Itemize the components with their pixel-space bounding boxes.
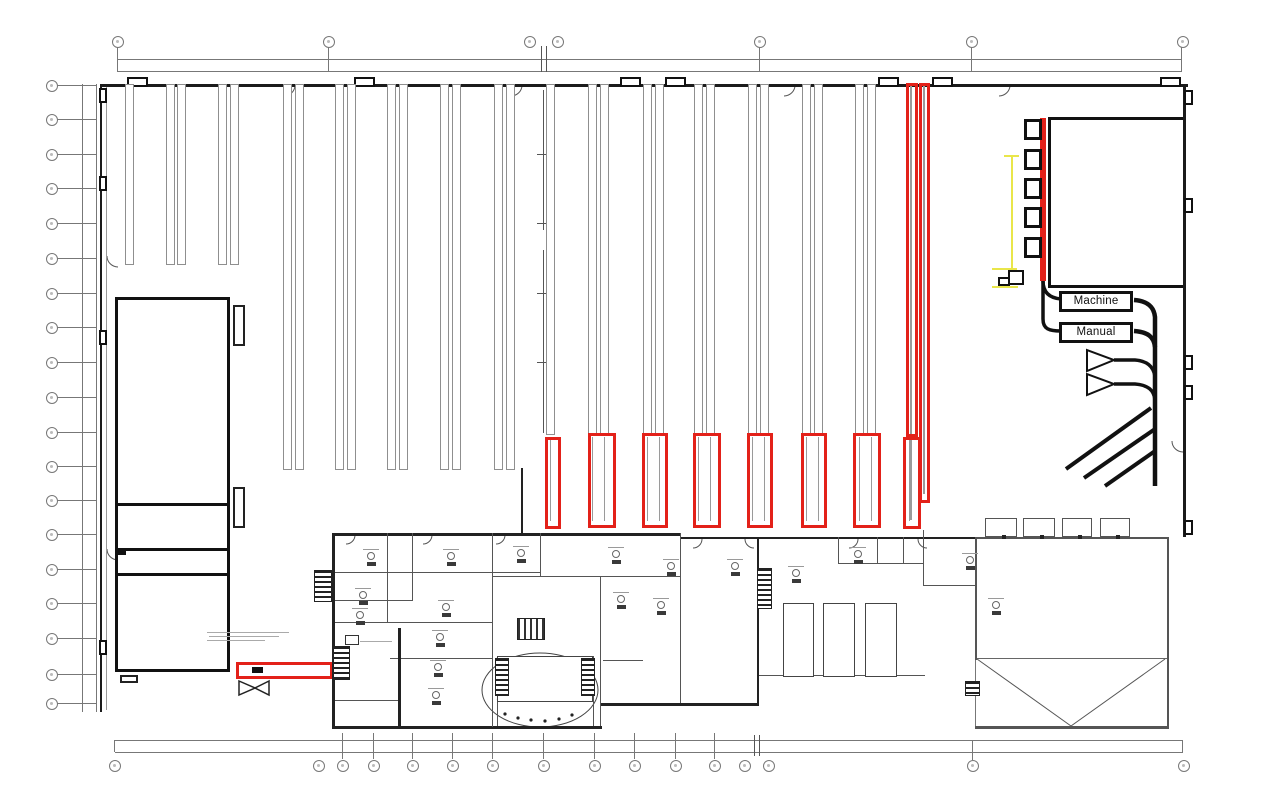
- room-tag: [432, 630, 448, 646]
- grid-marker-top: [112, 36, 124, 48]
- hall-wall-stub: [521, 468, 523, 533]
- grid-marker-top: [966, 36, 978, 48]
- plan-line: [529, 718, 532, 721]
- room-tag: [443, 549, 459, 565]
- rack-short: [125, 84, 134, 265]
- plan-line: [432, 701, 441, 705]
- plan-line: [1084, 429, 1155, 478]
- office-wall: [492, 533, 493, 727]
- tiny-note-line: [360, 641, 392, 642]
- bottom-grid-band: [115, 752, 1183, 753]
- plan-line: [356, 611, 364, 619]
- office-wall: [332, 700, 400, 701]
- plan-line: [1134, 331, 1155, 347]
- grid-marker-bottom: [109, 760, 121, 772]
- grid-marker-left: [46, 357, 58, 369]
- red-rack-end-box: [588, 433, 616, 528]
- plan-line: [850, 547, 866, 548]
- plan-line: [792, 579, 801, 583]
- grid-tick: [541, 46, 542, 72]
- grid-marker-bottom: [670, 760, 682, 772]
- room-tag: [653, 598, 669, 614]
- plan-line: [503, 712, 506, 715]
- pallet-stand-icon-small: [998, 277, 1010, 286]
- grid-tick: [57, 188, 96, 189]
- grid-marker-left: [46, 427, 58, 439]
- office-wall: [838, 563, 924, 564]
- rack-long: [506, 84, 515, 470]
- machine-cell: [1024, 119, 1042, 140]
- dock-bay: [985, 518, 1017, 537]
- staircase: [314, 570, 332, 602]
- staircase: [333, 646, 350, 680]
- grid-marker-left: [46, 253, 58, 265]
- rack-long: [295, 84, 304, 470]
- grid-tick: [57, 327, 96, 328]
- office-wall: [332, 533, 680, 536]
- office-wall: [390, 658, 492, 659]
- plan-line: [367, 562, 376, 566]
- plan-line: [727, 559, 743, 560]
- plan-line: [657, 611, 666, 615]
- plan-line: [612, 550, 620, 558]
- tiny-note-line: [207, 640, 265, 641]
- grid-marker-left: [46, 218, 58, 230]
- manual-label: Manual: [1077, 326, 1116, 338]
- grid-marker-left: [46, 633, 58, 645]
- room-tag: [850, 547, 866, 563]
- office-wall: [492, 576, 680, 577]
- plan-line: [667, 572, 676, 576]
- machine-cell: [1024, 207, 1042, 228]
- top-grid-band: [117, 59, 1182, 60]
- expansion-joint: [543, 250, 544, 433]
- grid-tick: [1181, 46, 1182, 72]
- plan-line: [613, 592, 629, 593]
- grid-tick: [594, 733, 595, 759]
- plan-line: [693, 539, 702, 548]
- rack-long: [494, 84, 503, 470]
- plan-line: [513, 546, 529, 547]
- office-wall: [923, 585, 975, 586]
- plan-line: [1114, 360, 1155, 376]
- office-wall: [603, 660, 643, 661]
- plan-line: [355, 588, 371, 589]
- machine-cell: [1024, 149, 1042, 170]
- annex-mark: [118, 551, 126, 555]
- annex-divider: [115, 548, 230, 551]
- plan-line: [988, 598, 1004, 599]
- grid-marker-left: [46, 461, 58, 473]
- rack-mid: [814, 84, 823, 435]
- grid-marker-left: [46, 288, 58, 300]
- room-tag: [962, 553, 978, 569]
- office-wall: [387, 533, 388, 622]
- room-tag: [430, 660, 446, 676]
- wall-bump: [620, 77, 641, 87]
- wall-bump: [665, 77, 686, 87]
- grid-marker-left: [46, 598, 58, 610]
- storage-block: [865, 603, 897, 677]
- valve-bowtie-icon: [239, 681, 269, 695]
- grid-tick: [543, 733, 544, 759]
- plan-line: [792, 569, 800, 577]
- staircase: [581, 658, 595, 696]
- rack-mid: [600, 84, 609, 435]
- wall-bump: [1184, 385, 1193, 400]
- room-tag: [788, 566, 804, 582]
- plan-line: [517, 549, 525, 557]
- plan-line: [363, 549, 379, 550]
- yard-wall: [1167, 537, 1169, 728]
- staircase: [495, 658, 509, 696]
- room-tag: [428, 688, 444, 704]
- wall-bump: [932, 77, 953, 87]
- rack-mid: [546, 84, 555, 435]
- grid-marker-bottom: [313, 760, 325, 772]
- plan-line: [432, 691, 440, 699]
- plan-line: [731, 572, 740, 576]
- plan-line: [503, 712, 573, 722]
- plan-line: [667, 562, 675, 570]
- plan-line: [1071, 659, 1165, 726]
- dock-bay: [1062, 518, 1092, 537]
- dock-tick: [1078, 535, 1082, 539]
- tiny-note-line: [207, 632, 289, 633]
- office-wall: [923, 530, 924, 586]
- office-wall: [680, 533, 681, 703]
- plan-line: [434, 673, 443, 677]
- machine-station-outline: [1048, 117, 1186, 288]
- wall-bump: [1184, 355, 1193, 370]
- grid-tick: [57, 397, 96, 398]
- room-tag: [352, 608, 368, 624]
- left-grid-band: [82, 84, 83, 712]
- grid-tick: [972, 740, 973, 760]
- plan-line: [442, 613, 451, 617]
- annex-building-outline: [115, 297, 230, 672]
- office-wall: [600, 703, 759, 706]
- plan-line: [745, 539, 754, 548]
- plan-line: [854, 560, 863, 564]
- tiny-note-mark: [345, 635, 359, 645]
- grid-tick: [57, 703, 96, 704]
- plan-line: [854, 550, 862, 558]
- grid-tick: [114, 740, 115, 752]
- grid-tick: [971, 46, 972, 72]
- plan-line: [443, 549, 459, 550]
- grid-tick: [675, 733, 676, 759]
- grid-tick: [57, 569, 96, 570]
- rack-long: [335, 84, 344, 470]
- rack-mid: [588, 84, 597, 435]
- grid-tick: [452, 733, 453, 759]
- plan-line: [966, 566, 975, 570]
- wall-bump: [99, 88, 107, 103]
- plan-line: [356, 621, 365, 625]
- dock-bar-marker: [252, 667, 263, 673]
- wall-bump: [1184, 198, 1193, 213]
- grid-marker-left: [46, 114, 58, 126]
- grid-marker-left: [46, 392, 58, 404]
- plan-line: [617, 605, 626, 609]
- grid-marker-top: [323, 36, 335, 48]
- rack-short: [166, 84, 175, 265]
- red-rack-end-box: [693, 433, 721, 528]
- red-rack-end-box: [642, 433, 668, 528]
- office-wall: [332, 533, 335, 729]
- grid-marker-bottom: [1178, 760, 1190, 772]
- plan-line: [359, 601, 368, 605]
- rack-short: [218, 84, 227, 265]
- office-wall: [877, 537, 878, 564]
- plan-line: [517, 559, 526, 563]
- grid-tick: [634, 733, 635, 759]
- plan-line: [496, 535, 505, 544]
- dock-tick: [1040, 535, 1044, 539]
- tiny-note-line: [209, 636, 279, 637]
- machine-cell: [1024, 178, 1042, 199]
- plan-line: [653, 598, 669, 599]
- machine-cell: [1024, 237, 1042, 258]
- pallet-stand-icon: [1008, 270, 1024, 285]
- plan-line: [438, 600, 454, 601]
- grid-tick: [57, 638, 96, 639]
- plan-line: [788, 566, 804, 567]
- plan-line: [1114, 384, 1155, 400]
- annex-divider: [115, 573, 230, 576]
- plan-line: [966, 556, 974, 564]
- office-wall: [757, 537, 759, 704]
- grid-tick: [57, 258, 96, 259]
- plan-line: [977, 659, 1071, 726]
- plan-line: [442, 603, 450, 611]
- room-tag: [608, 547, 624, 563]
- office-wall: [600, 576, 601, 726]
- grid-tick: [714, 733, 715, 759]
- grid-tick: [57, 534, 96, 535]
- plan-line: [107, 256, 118, 267]
- left-grid-band: [96, 84, 97, 712]
- grid-marker-left: [46, 669, 58, 681]
- yard-ramp-lines: [977, 659, 1165, 726]
- grid-tick: [57, 293, 96, 294]
- room-tag: [438, 600, 454, 616]
- office-wall: [540, 533, 541, 576]
- room-tag: [988, 598, 1004, 614]
- grid-tick: [1182, 740, 1183, 752]
- grid-marker-top: [1177, 36, 1189, 48]
- red-vertical-lane: [906, 83, 918, 437]
- grid-marker-left: [46, 698, 58, 710]
- rack-mid: [706, 84, 715, 435]
- wall-bump: [1184, 90, 1193, 105]
- grid-marker-bottom: [589, 760, 601, 772]
- office-wall: [332, 726, 602, 729]
- dock-bay: [1100, 518, 1130, 537]
- rack-short: [177, 84, 186, 265]
- wall-bump: [1184, 520, 1193, 535]
- room-tag: [613, 592, 629, 608]
- yellow-buffer-underline: [992, 286, 1018, 288]
- grid-marker-left: [46, 529, 58, 541]
- plan-line: [608, 547, 624, 548]
- entrance-hall: [497, 656, 593, 702]
- plan-line: [436, 633, 444, 641]
- plan-line: [434, 663, 442, 671]
- plan-line: [1087, 374, 1114, 395]
- grid-marker-bottom: [967, 760, 979, 772]
- wall-bump: [99, 330, 107, 345]
- yellow-buffer-tick-top: [1004, 155, 1019, 157]
- rack-mid: [760, 84, 769, 435]
- plan-line: [516, 716, 519, 719]
- grid-marker-bottom: [739, 760, 751, 772]
- grid-tick: [117, 46, 118, 72]
- rack-long: [440, 84, 449, 470]
- plan-line: [543, 719, 546, 722]
- room-tag: [727, 559, 743, 575]
- grid-marker-left: [46, 149, 58, 161]
- plan-line: [346, 535, 355, 544]
- plan-line: [432, 630, 448, 631]
- plan-line: [1172, 441, 1183, 452]
- office-wall: [412, 533, 413, 600]
- red-dock-bar: [236, 662, 333, 679]
- grid-tick: [412, 733, 413, 759]
- grid-tick: [57, 466, 96, 467]
- grid-marker-bottom: [407, 760, 419, 772]
- annex-protrusion: [233, 305, 245, 346]
- rack-short: [230, 84, 239, 265]
- plan-line: [428, 688, 444, 689]
- plan-line: [992, 601, 1000, 609]
- bottom-grid-band: [115, 740, 1183, 741]
- room-tag: [363, 549, 379, 565]
- top-grid-band: [117, 71, 1182, 72]
- grid-tick: [57, 85, 96, 86]
- grid-marker-left: [46, 564, 58, 576]
- grid-marker-left: [46, 495, 58, 507]
- staircase: [757, 568, 772, 609]
- plan-line: [1087, 350, 1114, 371]
- annex-step: [120, 675, 138, 683]
- wall-bump: [354, 77, 375, 87]
- rack-long: [452, 84, 461, 470]
- machine-label-box: Machine: [1059, 291, 1133, 312]
- grid-tick: [57, 432, 96, 433]
- plan-line: [423, 535, 432, 544]
- plan-line: [617, 595, 625, 603]
- plan-line: [436, 643, 445, 647]
- grid-marker-left: [46, 183, 58, 195]
- office-wall: [903, 537, 904, 564]
- grid-marker-bottom: [538, 760, 550, 772]
- grid-tick: [328, 46, 329, 72]
- red-rack-end-box: [545, 437, 561, 529]
- plan-line: [663, 559, 679, 560]
- plan-line: [612, 560, 621, 564]
- annex-protrusion: [233, 487, 245, 528]
- grid-tick: [342, 733, 343, 759]
- plan-line: [557, 717, 560, 720]
- plan-line: [657, 601, 665, 609]
- room-tag: [513, 546, 529, 562]
- plan-line: [731, 562, 739, 570]
- grid-tick: [546, 46, 547, 72]
- room-tag: [355, 588, 371, 604]
- plan-line: [255, 681, 269, 695]
- office-wall: [680, 537, 975, 539]
- wall-bump: [99, 640, 107, 655]
- grid-marker-bottom: [337, 760, 349, 772]
- rack-long: [387, 84, 396, 470]
- office-wall: [332, 572, 540, 573]
- grid-tick: [57, 154, 96, 155]
- grid-tick: [57, 500, 96, 501]
- grid-marker-bottom: [368, 760, 380, 772]
- rack-long: [283, 84, 292, 470]
- rack-mid: [867, 84, 876, 435]
- rack-mid: [694, 84, 703, 435]
- office-wall: [838, 537, 839, 564]
- machine-label: Machine: [1074, 295, 1119, 307]
- rack-long: [399, 84, 408, 470]
- rack-mid: [748, 84, 757, 435]
- wall-bump: [1160, 77, 1181, 87]
- rack-long: [347, 84, 356, 470]
- grid-marker-left: [46, 322, 58, 334]
- plan-line: [352, 608, 368, 609]
- floor-plan: Machine Manual: [0, 0, 1280, 801]
- red-vertical-lane: [919, 83, 930, 503]
- room-tag: [663, 559, 679, 575]
- plan-line: [367, 552, 375, 560]
- grid-tick: [57, 223, 96, 224]
- grid-tick: [57, 362, 96, 363]
- expansion-joint: [543, 90, 544, 230]
- grid-tick: [759, 46, 760, 72]
- grid-marker-bottom: [447, 760, 459, 772]
- office-wall: [398, 628, 401, 727]
- grid-tick: [754, 735, 755, 756]
- plan-line: [430, 660, 446, 661]
- grid-marker-top: [552, 36, 564, 48]
- grid-tick: [57, 119, 96, 120]
- outbound-diagonal-lines: [1066, 408, 1155, 486]
- rack-mid: [655, 84, 664, 435]
- wall-bump: [99, 176, 107, 191]
- wall-bump: [878, 77, 899, 87]
- plan-line: [992, 611, 1001, 615]
- grid-marker-bottom: [709, 760, 721, 772]
- rack-mid: [643, 84, 652, 435]
- hall-right-wall: [1183, 84, 1186, 537]
- dock-tick: [1002, 535, 1006, 539]
- plan-line: [447, 562, 456, 566]
- red-rack-end-box: [747, 433, 773, 528]
- red-rack-end-box: [801, 433, 827, 528]
- yellow-buffer-line: [1011, 156, 1013, 269]
- storage-block: [783, 603, 814, 677]
- plan-line: [239, 681, 255, 695]
- manual-label-box: Manual: [1059, 322, 1133, 343]
- grid-tick: [373, 733, 374, 759]
- grid-marker-bottom: [763, 760, 775, 772]
- grid-marker-top: [754, 36, 766, 48]
- grid-marker-left: [46, 80, 58, 92]
- grid-marker-top: [524, 36, 536, 48]
